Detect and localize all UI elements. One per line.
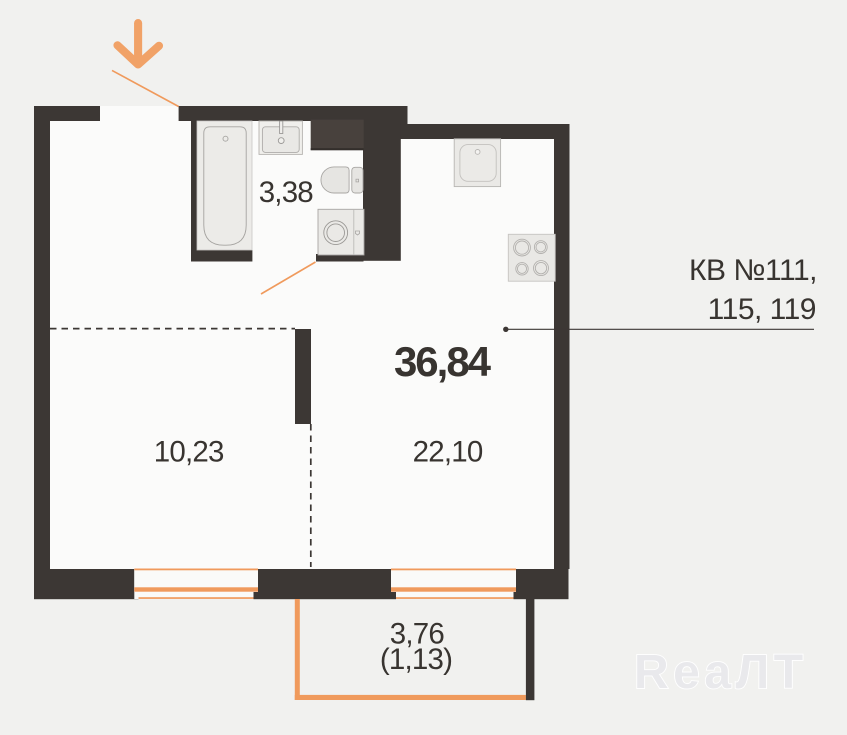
svg-text:ReaЛТ: ReaЛТ: [634, 646, 808, 699]
svg-text:КВ №111,: КВ №111,: [689, 254, 817, 287]
svg-text:22,10: 22,10: [413, 436, 483, 469]
svg-text:(1,13): (1,13): [380, 643, 452, 676]
svg-text:115, 119: 115, 119: [708, 293, 816, 326]
svg-text:10,23: 10,23: [154, 436, 224, 469]
svg-text:36,84: 36,84: [394, 338, 492, 385]
svg-text:3,38: 3,38: [259, 176, 314, 209]
